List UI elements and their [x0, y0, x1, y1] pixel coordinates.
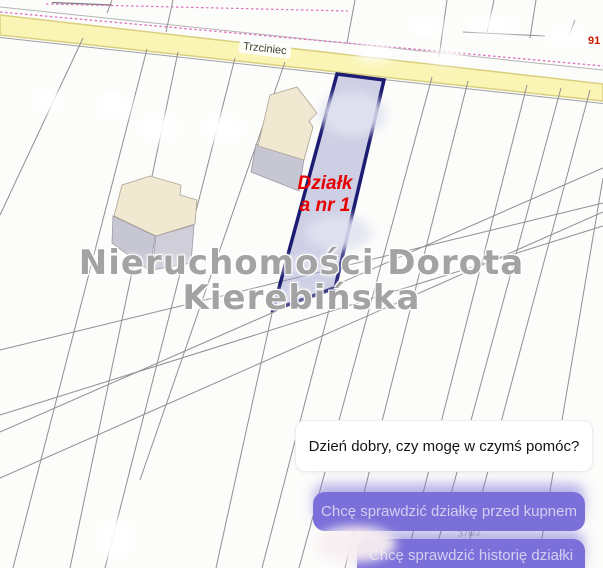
blurred-parcel-number: [305, 215, 371, 251]
blurred-parcel-number: [355, 44, 395, 61]
blurred-parcel-number: [316, 526, 396, 562]
blurred-parcel-number: [138, 114, 180, 142]
parcel-annotation-line2: a nr 1: [293, 195, 357, 217]
chat-agent-message: Dzień dobry, czy mogę w czymś pomóc?: [295, 420, 593, 472]
blurred-parcel-number: [543, 27, 593, 47]
blurred-parcel-number: [93, 92, 133, 118]
blurred-parcel-number: [405, 18, 445, 36]
parcel-annotation: Działk a nr 1: [293, 173, 357, 217]
blurred-parcel-number: [320, 92, 386, 136]
blurred-parcel-number: [200, 115, 246, 143]
blurred-parcel-number: [96, 518, 136, 560]
map-canvas[interactable]: [0, 0, 603, 568]
parcel-number-91: 91: [588, 35, 600, 47]
parcel-annotation-line1: Działk: [293, 173, 357, 195]
blurred-parcel-number: [30, 90, 64, 112]
cadastral-map-screen: Trzciniec 91 378/2 Działk a nr 1 Nieruch…: [0, 0, 603, 568]
blurred-parcel-number: [428, 48, 464, 63]
blurred-parcel-number: [465, 14, 523, 34]
